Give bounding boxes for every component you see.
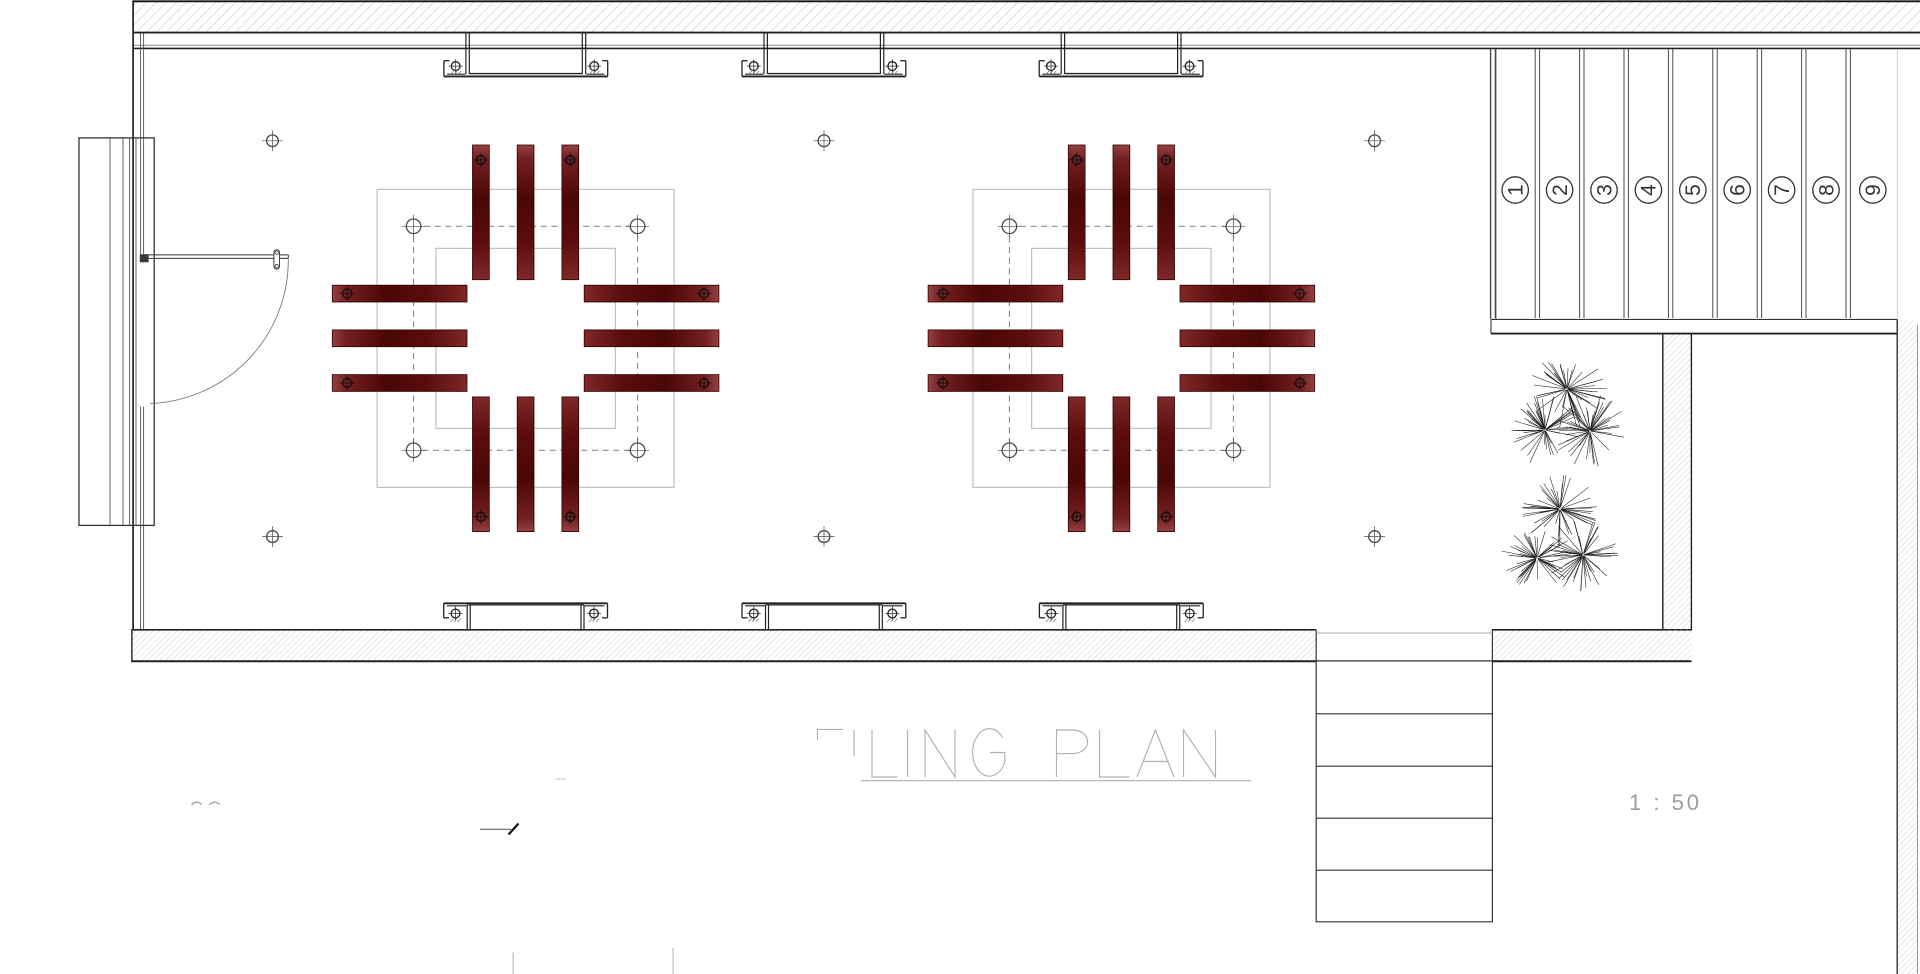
svg-text:6: 6	[1727, 184, 1750, 196]
svg-text:1 : 50: 1 : 50	[1629, 790, 1702, 815]
svg-text:2: 2	[1549, 184, 1572, 196]
svg-text:7: 7	[1771, 184, 1794, 196]
svg-text:3: 3	[1593, 184, 1616, 196]
svg-text:5: 5	[1682, 184, 1705, 196]
svg-text:1: 1	[1505, 184, 1528, 196]
svg-text:4: 4	[1638, 184, 1661, 196]
svg-text:8: 8	[1815, 184, 1838, 196]
svg-text:9: 9	[1862, 184, 1885, 196]
